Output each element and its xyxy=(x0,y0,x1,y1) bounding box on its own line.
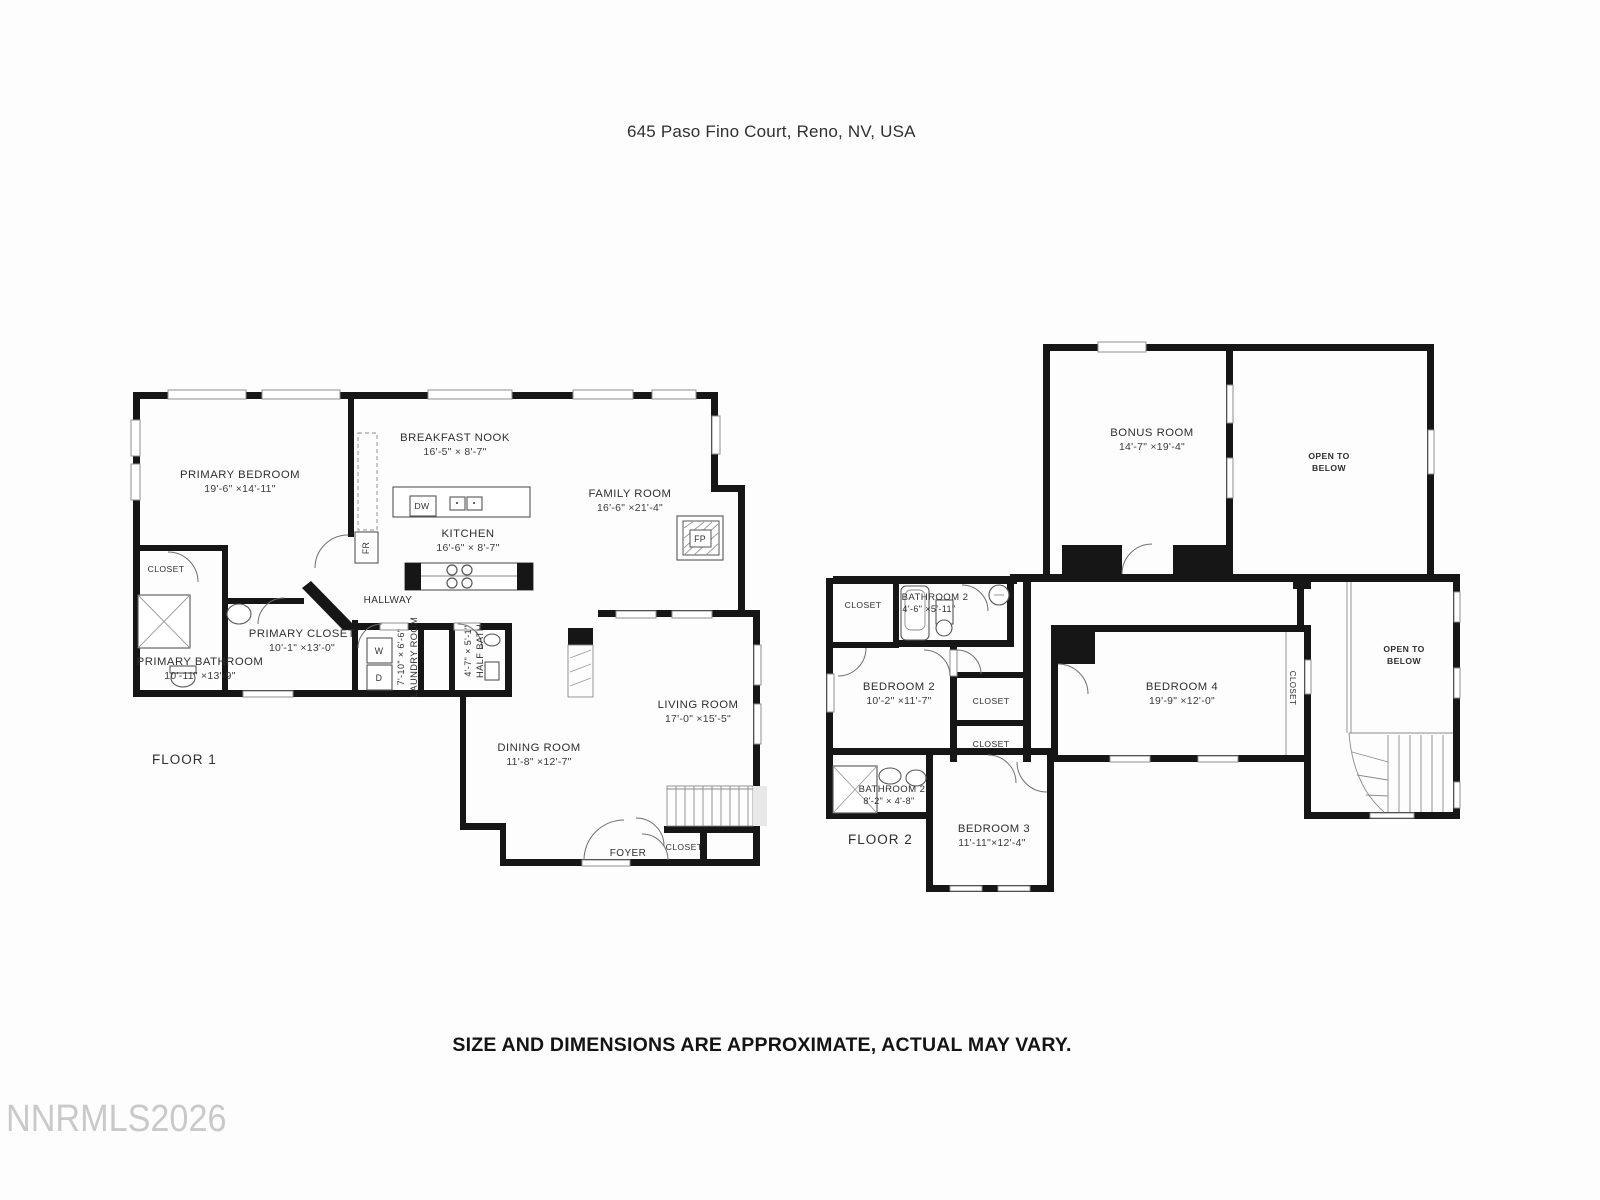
disclaimer-text: SIZE AND DIMENSIONS ARE APPROXIMATE, ACT… xyxy=(0,1034,1524,1057)
open-to-below-label: BELOW xyxy=(1387,656,1421,666)
room-label-primary-bedroom: PRIMARY BEDROOM xyxy=(180,469,300,481)
kitchen-counter xyxy=(405,563,533,590)
bath-sink-icon xyxy=(227,604,251,624)
room-label-bonus-room: BONUS ROOM xyxy=(1110,427,1193,439)
floor2-label: FLOOR 2 xyxy=(848,832,913,847)
room-label-primary-bathroom: PRIMARY BATHROOM xyxy=(137,656,264,668)
room-dims-laundry: 7'-10" × 6'-6" xyxy=(396,629,406,686)
closet-label: CLOSET xyxy=(973,739,1010,749)
room-dims-dining-room: 11'-8" ×12'-7" xyxy=(506,757,571,768)
room-dims-bonus-room: 14'-7" ×19'-4" xyxy=(1119,442,1185,453)
room-dims-bedroom4: 19'-9" ×12'-0" xyxy=(1149,696,1215,707)
room-dims-living-room: 17'-0" ×15'-5" xyxy=(665,714,731,725)
room-label-bathroom2: BATHROOM 2 xyxy=(902,592,969,603)
room-dims-breakfast-nook: 16'-5" × 8'-7" xyxy=(423,447,486,458)
floor2-plan: BONUS ROOM 14'-7" ×19'-4" OPEN TO BELOW … xyxy=(826,342,1460,892)
closet-label: CLOSET xyxy=(973,696,1010,706)
room-label-living-room: LIVING ROOM xyxy=(658,699,739,711)
floorplan-drawing: PRIMARY BEDROOM 19'-6" ×14'-11" BREAKFAS… xyxy=(0,0,1600,1200)
closet-label: CLOSET xyxy=(1288,671,1297,705)
room-label-half-bath: HALF BATH xyxy=(475,624,485,678)
closet-label: CLOSET xyxy=(845,600,882,610)
room-label-laundry: LAUNDRY ROOM xyxy=(409,617,419,697)
dishwasher-label: DW xyxy=(414,501,430,511)
room-dims-bathroom2: 4'-6" ×5'-11" xyxy=(902,604,955,614)
shower-icon xyxy=(138,595,190,648)
toilet-icon xyxy=(879,768,901,784)
room-dims-bedroom3: 11'-11"×12'-4" xyxy=(958,838,1025,849)
room-dims-bedroom2: 10'-2" ×11'-7" xyxy=(866,696,931,707)
room-dims-primary-bedroom: 19'-6" ×14'-11" xyxy=(204,484,275,495)
stairs-icon xyxy=(1349,733,1453,812)
room-label-bedroom2: BEDROOM 2 xyxy=(863,681,935,693)
room-label-kitchen: KITCHEN xyxy=(441,528,494,540)
room-label-hallway: HALLWAY xyxy=(364,595,413,606)
room-label-breakfast-nook: BREAKFAST NOOK xyxy=(400,432,510,444)
closet-label: CLOSET xyxy=(148,564,185,574)
room-label-dining-room: DINING ROOM xyxy=(497,742,580,754)
room-label-bedroom3: BEDROOM 3 xyxy=(958,823,1030,835)
room-dims-kitchen: 16'-6" × 8'-7" xyxy=(436,543,499,554)
closet-label: CLOSET xyxy=(666,842,703,852)
halfbath-sink-icon xyxy=(484,634,500,646)
room-label-foyer: FOYER xyxy=(610,848,646,859)
stairs-icon xyxy=(667,786,767,826)
halfbath-toilet-icon xyxy=(485,662,499,680)
open-to-below-label: OPEN TO xyxy=(1308,451,1349,461)
fireplace-label: FP xyxy=(694,534,706,544)
room-label-primary-closet: PRIMARY CLOSET xyxy=(249,628,355,640)
floor1-label: FLOOR 1 xyxy=(152,752,217,767)
fridge-label: FR xyxy=(361,542,371,554)
open-to-below-label: BELOW xyxy=(1312,463,1346,473)
floor1-plan: PRIMARY BEDROOM 19'-6" ×14'-11" BREAKFAS… xyxy=(131,390,767,866)
room-dims-family-room: 16'-6" ×21'-4" xyxy=(597,503,663,514)
room-dims-primary-closet: 10'-1" ×13'-0" xyxy=(269,643,335,654)
room-label-bathroom2b: BATHROOM 2 xyxy=(859,784,926,795)
room-dims-half-bath: 4'-7" × 5'-1" xyxy=(463,625,473,676)
open-to-below-label: OPEN TO xyxy=(1383,644,1424,654)
room-dims-bathroom2b: 8'-2" × 4'-8" xyxy=(863,796,914,806)
floorplan-page: 645 Paso Fino Court, Reno, NV, USA xyxy=(0,0,1600,1200)
room-label-family-room: FAMILY ROOM xyxy=(589,488,672,500)
room-label-bedroom4: BEDROOM 4 xyxy=(1146,681,1218,693)
pantry-strip xyxy=(568,645,593,697)
dryer-label: D xyxy=(376,673,383,683)
floor1-walls xyxy=(133,392,760,866)
washer-label: W xyxy=(375,646,384,656)
room-dims-primary-bathroom: 10'-11" ×13'-9" xyxy=(164,671,235,682)
mls-watermark: NNRMLS2026 xyxy=(6,1098,227,1141)
